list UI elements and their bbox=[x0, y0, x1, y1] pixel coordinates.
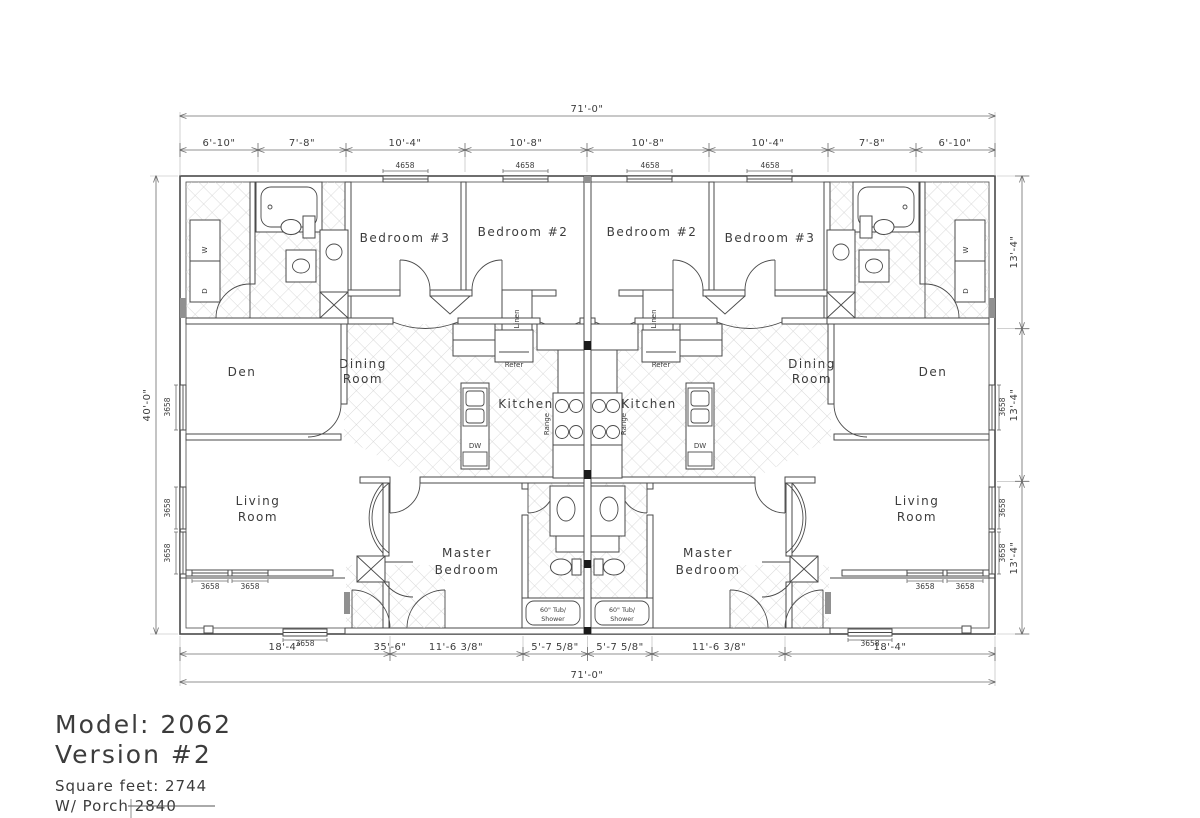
dim-left-overall: 40'-0" bbox=[142, 388, 153, 421]
refrigerator-label-left: Refer bbox=[505, 361, 524, 369]
party-wall bbox=[584, 176, 591, 634]
dim-right-segment-2: 13'-4" bbox=[1009, 541, 1020, 574]
dim-bottom-overall: 71'-0" bbox=[570, 670, 603, 681]
dishwasher-label-left: DW bbox=[469, 442, 481, 450]
window-3658-left-1: 3658 bbox=[163, 397, 172, 416]
dim-bottom-segment-1: 35'-6" bbox=[373, 642, 406, 653]
room-label-kitchen-left: Kitchen bbox=[498, 397, 554, 411]
room-label-master-right-1: Master bbox=[683, 546, 733, 560]
dim-right-segment-1: 13'-4" bbox=[1009, 388, 1020, 421]
room-label-bedroom3-left: Bedroom #3 bbox=[360, 231, 451, 245]
tub-label-left-2: Shower bbox=[541, 616, 565, 623]
room-label-living-right-1: Living bbox=[895, 494, 940, 508]
window-3658-south-left-1: 3658 bbox=[200, 582, 219, 591]
version-title: Version #2 bbox=[55, 740, 212, 769]
window-3658-right-2: 3658 bbox=[998, 498, 1007, 517]
room-label-living-right-2: Room bbox=[897, 510, 937, 524]
window-4658-top-1: 4658 bbox=[395, 161, 414, 170]
window-3658-right-1: 3658 bbox=[998, 397, 1007, 416]
room-label-living-left-2: Room bbox=[238, 510, 278, 524]
room-label-dining-right-1: Dining bbox=[788, 357, 836, 371]
window-4658-top-3: 4658 bbox=[640, 161, 659, 170]
room-label-dining-right-2: Room bbox=[792, 372, 832, 386]
window-4658-top-4: 4658 bbox=[760, 161, 779, 170]
room-label-den-left: Den bbox=[228, 365, 257, 379]
dim-top-overall: 71'-0" bbox=[570, 104, 603, 115]
room-label-dining-left-1: Dining bbox=[339, 357, 387, 371]
window-3658-left-2: 3658 bbox=[163, 498, 172, 517]
dim-top-segment-2: 10'-4" bbox=[388, 138, 421, 149]
square-feet-text: Square feet: 2744 bbox=[55, 777, 207, 795]
window-3658-bottom-left: 3658 bbox=[295, 639, 314, 648]
washer-label-left: W bbox=[201, 246, 209, 253]
room-label-bedroom2-right: Bedroom #2 bbox=[607, 225, 698, 239]
floor-plan-canvas: 71'-0" 6'-10" 7'-8" 10'-4" 10'-8" 10'-8"… bbox=[0, 0, 1200, 818]
window-3658-left-3: 3658 bbox=[163, 543, 172, 562]
dim-top-segment-3: 10'-8" bbox=[509, 138, 542, 149]
title-block: Model: 2062 Version #2 Square feet: 2744… bbox=[55, 710, 232, 818]
dim-top-segment-4: 10'-8" bbox=[631, 138, 664, 149]
window-3658-bottom-right: 3658 bbox=[860, 639, 879, 648]
dim-right-segment-0: 13'-4" bbox=[1009, 235, 1020, 268]
washer-label-right: W bbox=[962, 246, 970, 253]
dim-bottom-segment-4: 5'-7 5/8" bbox=[596, 642, 643, 653]
dim-top-segment-6: 7'-8" bbox=[859, 138, 885, 149]
room-label-master-right-2: Bedroom bbox=[676, 563, 741, 577]
window-3658-south-right-2: 3658 bbox=[955, 582, 974, 591]
window-3658-south-left-2: 3658 bbox=[240, 582, 259, 591]
dishwasher-label-right: DW bbox=[694, 442, 706, 450]
dim-top-segment-7: 6'-10" bbox=[938, 138, 971, 149]
window-4658-top-2: 4658 bbox=[515, 161, 534, 170]
dim-bottom-segment-2: 11'-6 3/8" bbox=[429, 642, 483, 653]
range-label-left: Range bbox=[543, 413, 551, 435]
room-label-master-left-2: Bedroom bbox=[435, 563, 500, 577]
room-label-dining-left-2: Room bbox=[343, 372, 383, 386]
room-label-living-left-1: Living bbox=[236, 494, 281, 508]
window-3658-right-3: 3658 bbox=[998, 543, 1007, 562]
window-3658-south-right-1: 3658 bbox=[915, 582, 934, 591]
linen-label-left: Linen bbox=[513, 309, 521, 328]
tub-label-left-1: 60" Tub/ bbox=[540, 607, 567, 614]
dim-bottom-segment-3: 5'-7 5/8" bbox=[531, 642, 578, 653]
room-label-den-right: Den bbox=[919, 365, 948, 379]
tub-label-right-2: Shower bbox=[610, 616, 634, 623]
model-title: Model: 2062 bbox=[55, 710, 232, 739]
dim-top-segment-5: 10'-4" bbox=[751, 138, 784, 149]
range-label-right: Range bbox=[620, 413, 628, 435]
dim-top-segment-1: 7'-8" bbox=[289, 138, 315, 149]
dim-bottom-segment-5: 11'-6 3/8" bbox=[692, 642, 746, 653]
room-label-bedroom3-right: Bedroom #3 bbox=[725, 231, 816, 245]
dim-top-segment-0: 6'-10" bbox=[202, 138, 235, 149]
refrigerator-label-right: Refer bbox=[652, 361, 671, 369]
tub-label-right-1: 60" Tub/ bbox=[609, 607, 636, 614]
room-label-kitchen-right: Kitchen bbox=[621, 397, 677, 411]
room-label-master-left-1: Master bbox=[442, 546, 492, 560]
dryer-label-right: D bbox=[962, 288, 970, 293]
floor-plan-page: 71'-0" 6'-10" 7'-8" 10'-4" 10'-8" 10'-8"… bbox=[0, 0, 1200, 818]
dryer-label-left: D bbox=[201, 288, 209, 293]
room-label-bedroom2-left: Bedroom #2 bbox=[478, 225, 569, 239]
linen-label-right: Linen bbox=[650, 309, 658, 328]
